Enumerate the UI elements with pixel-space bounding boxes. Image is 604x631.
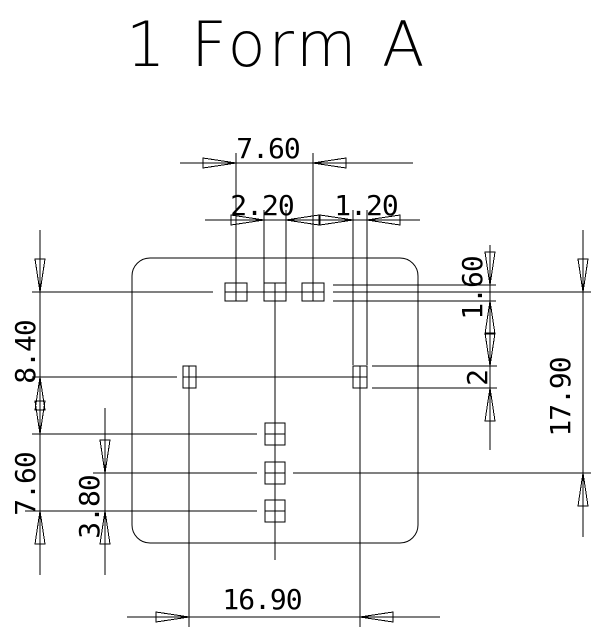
dim-label-side-pad-span: 16.90 xyxy=(222,586,301,614)
dim-label-top-to-side-row: 8.40 xyxy=(12,320,40,383)
dim-label-top-pad-height: 1.60 xyxy=(459,256,487,319)
extension-lines xyxy=(25,153,591,627)
dimension-arrows xyxy=(35,158,588,622)
dim-label-top-pad-span: 7.60 xyxy=(236,135,299,163)
technical-drawing-canvas: 1 Form A xyxy=(0,0,604,631)
dim-label-top-pad-width: 2.20 xyxy=(230,192,293,220)
dimension-lines xyxy=(40,163,583,617)
dim-label-overall-vertical: 17.90 xyxy=(547,357,575,436)
dim-label-center-pad-half-span: 3.80 xyxy=(76,475,104,538)
dim-label-side-pad-width: 1.20 xyxy=(334,192,397,220)
dim-label-side-pad-height: 2 xyxy=(464,370,492,386)
dim-label-center-pad-span: 7.60 xyxy=(12,452,40,515)
